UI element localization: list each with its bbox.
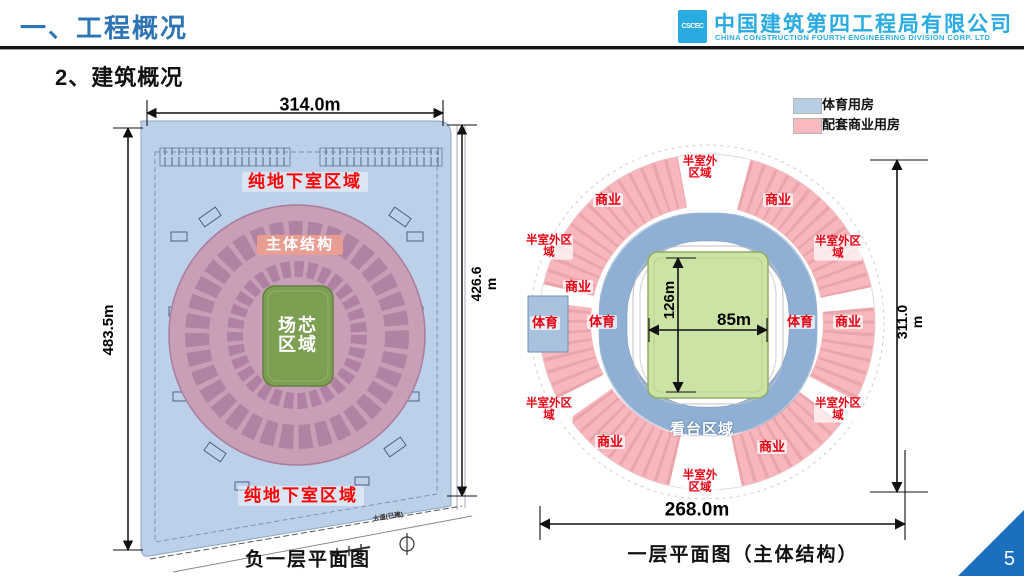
label-basement-bottom: 纯地下室区域	[238, 486, 364, 506]
label-main-structure: 主体结构	[257, 235, 343, 255]
page-number: 5	[1004, 548, 1015, 571]
level1-plan-caption: 一层平面图（主体结构）	[627, 546, 858, 567]
label-commercial-lower-left: 商业	[595, 435, 625, 449]
legend-label-sports: 体育用房	[822, 98, 874, 112]
label-semi-outdoor-right: 半室外区 域	[814, 236, 862, 261]
label-sports-right: 体育	[785, 315, 815, 329]
label-stand-area: 看台区域	[670, 422, 734, 438]
label-semi-outdoor-left: 半室外区 域	[525, 235, 573, 260]
dim-right-height: 426.6 m	[469, 266, 499, 301]
dim-top-width: 314.0m	[279, 95, 340, 114]
cscec-logo-icon: CSCEC	[678, 10, 707, 43]
label-commercial-left: 商业	[563, 280, 593, 294]
dim-field-width: 85m	[717, 311, 751, 329]
label-semi-outdoor-lower-left: 半室外区 域	[525, 398, 573, 423]
level1-plan-diagram: 体育用房 配套商业用房 半室外 区域 商业 商业 半室外区 域 半室外区 域 商…	[520, 92, 980, 576]
basement-plan-diagram: 314.0m 483.5m 426.6 m 纯地下室区域 主体结构 场芯 区域 …	[85, 92, 515, 576]
legend-label-commercial: 配套商业用房	[822, 118, 900, 132]
dim-field-height: 126m	[662, 281, 678, 319]
label-commercial-far-right: 商业	[833, 315, 863, 329]
legend-swatch-sports	[793, 98, 822, 114]
label-commercial-upper-right: 商业	[763, 193, 793, 207]
label-sports-far-left: 体育	[530, 316, 560, 330]
label-core-area: 场芯 区域	[278, 317, 318, 356]
dim-bottom-width: 268.0m	[665, 501, 729, 522]
label-semi-outdoor-top: 半室外 区域	[682, 156, 719, 181]
dim-right-height: 311.0 m	[895, 305, 925, 339]
label-commercial-lower-right: 商业	[757, 440, 787, 454]
header-divider	[0, 46, 1024, 50]
label-basement-top: 纯地下室区域	[242, 172, 368, 192]
page-title: 一、工程概况	[20, 8, 188, 45]
slide: 一、工程概况 CSCEC 中国建筑第四工程局有限公司 CHINA CONSTRU…	[0, 0, 1024, 576]
section-subtitle: 2、建筑概况	[55, 60, 183, 92]
basement-plan-caption: 负一层平面图	[245, 551, 371, 572]
dim-left-height: 483.5m	[101, 305, 117, 356]
company-name-en: CHINA CONSTRUCTION FOURTH ENGINEERING DI…	[715, 33, 990, 42]
legend-swatch-commercial	[793, 118, 822, 134]
label-sports-left: 体育	[587, 315, 617, 329]
label-semi-outdoor-bottom: 半室外 区域	[682, 470, 719, 495]
label-semi-outdoor-lower-right: 半室外区 域	[814, 398, 862, 423]
label-commercial-upper-left: 商业	[593, 193, 623, 207]
